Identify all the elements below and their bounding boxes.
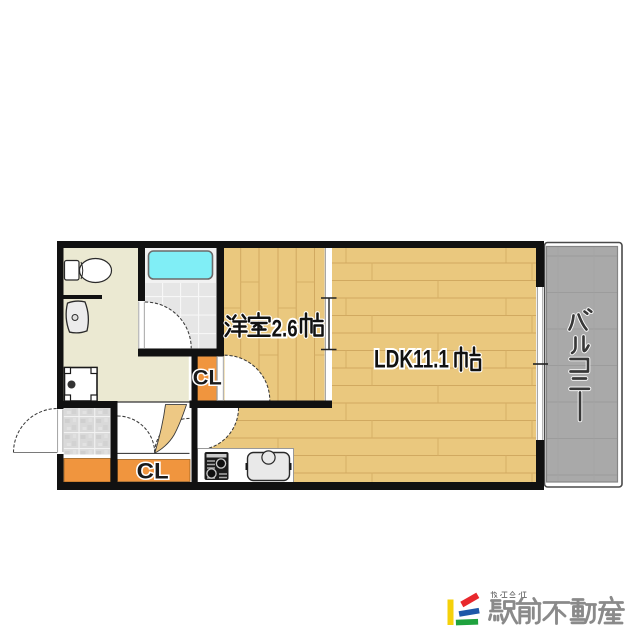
svg-text:CL: CL <box>137 459 169 484</box>
svg-text:LDK11.1: LDK11.1 <box>374 345 449 373</box>
svg-text:2.6: 2.6 <box>272 315 298 342</box>
svg-text:CL: CL <box>193 366 222 389</box>
